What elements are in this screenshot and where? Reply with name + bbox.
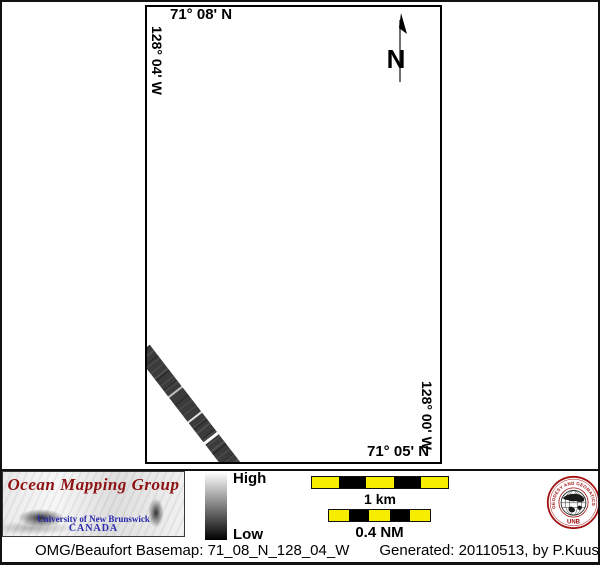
scalebar-nm-bar: [328, 509, 431, 522]
footer-generated-text: Generated: 20110513, by P.Kuus: [379, 542, 599, 559]
scalebar-segment: [312, 477, 339, 488]
north-arrow-icon: N: [383, 12, 417, 88]
scalebar-segment: [394, 477, 421, 488]
scalebar-segment: [421, 477, 448, 488]
north-arrow-letter: N: [387, 44, 406, 74]
footer-text: OMG/Beaufort Basemap: 71_08_N_128_04_W G…: [35, 542, 595, 559]
omg-logo-title: Ocean Mapping Group: [3, 475, 184, 495]
scalebar-segment: [410, 510, 430, 521]
omg-logo-country: CANADA: [3, 523, 184, 534]
scalebar-segment: [366, 477, 393, 488]
depth-colorbar: [205, 472, 227, 540]
scalebar-segment: [390, 510, 410, 521]
scalebar-segment: [329, 510, 349, 521]
scalebar-segment: [339, 477, 366, 488]
scalebar-nm: 0.4 NM: [328, 509, 431, 541]
lat-label-top: 71° 08' N: [170, 6, 232, 23]
scalebar-segment: [349, 510, 369, 521]
basemap-page: 71° 08' N 128° 04' W 128° 00' W 71° 05' …: [0, 0, 600, 565]
footer-basemap-text: OMG/Beaufort Basemap: 71_08_N_128_04_W: [35, 542, 349, 559]
scalebar-km-label: 1 km: [311, 491, 449, 507]
scalebar-segment: [369, 510, 389, 521]
lon-label-right: 128° 00' W: [419, 381, 435, 450]
scalebar-nm-label: 0.4 NM: [328, 524, 431, 541]
colorbar-high-label: High: [233, 470, 266, 487]
scalebar-km-bar: [311, 476, 449, 489]
seal-unb-text: UNB: [567, 520, 581, 526]
lat-label-bottom: 71° 05' N: [367, 443, 429, 460]
scalebar-km: 1 km: [311, 476, 449, 507]
lon-label-left: 128° 04' W: [149, 26, 165, 95]
unb-seal: GEODESY AND GEOMATICS ENGINEERING UNB: [545, 474, 600, 531]
omg-logo: Ocean Mapping Group University of New Br…: [2, 471, 185, 537]
colorbar-low-label: Low: [233, 526, 263, 543]
